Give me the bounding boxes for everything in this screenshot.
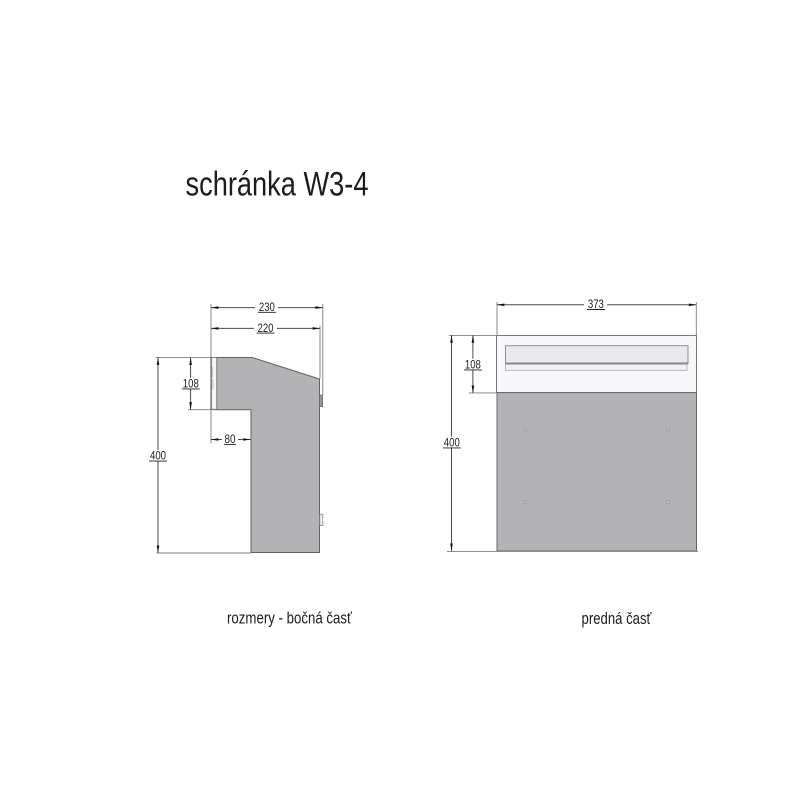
- svg-text:schránka W3-4: schránka W3-4: [186, 165, 369, 203]
- svg-text:rozmery - bočná časť: rozmery - bočná časť: [227, 609, 352, 628]
- svg-text:predná časť: predná časť: [582, 609, 652, 628]
